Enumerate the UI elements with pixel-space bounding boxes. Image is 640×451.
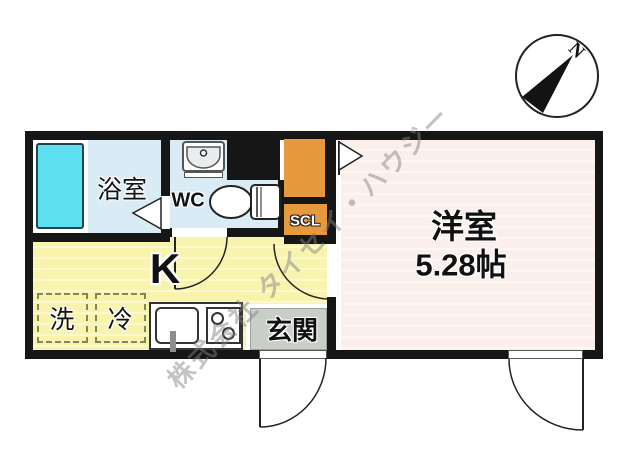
fridge-label: 冷 xyxy=(107,300,132,336)
toilet-bowl xyxy=(210,186,252,218)
wc-label: WC xyxy=(171,190,204,213)
entrance-label: 玄関 xyxy=(266,311,318,348)
west-opening-icon xyxy=(339,142,362,170)
washbasin-faucet-icon xyxy=(201,150,207,156)
scl-label: SCL xyxy=(290,213,320,230)
bathroom-label: 浴室 xyxy=(97,170,147,206)
entrance-door-arc xyxy=(260,358,326,427)
toilet-tank xyxy=(251,185,280,219)
washer-label: 洗 xyxy=(49,300,74,336)
kitchen-label: K xyxy=(150,245,180,293)
west-outside-door-arc xyxy=(509,359,583,430)
floor-plan: 株式会社 タイセイ・ハウジー 浴室 WC SCL K 洗 冷 玄関 洋室 5.2… xyxy=(0,0,640,451)
western-room-area: 5.28帖 xyxy=(415,240,506,285)
wc-door-arc xyxy=(175,237,227,289)
